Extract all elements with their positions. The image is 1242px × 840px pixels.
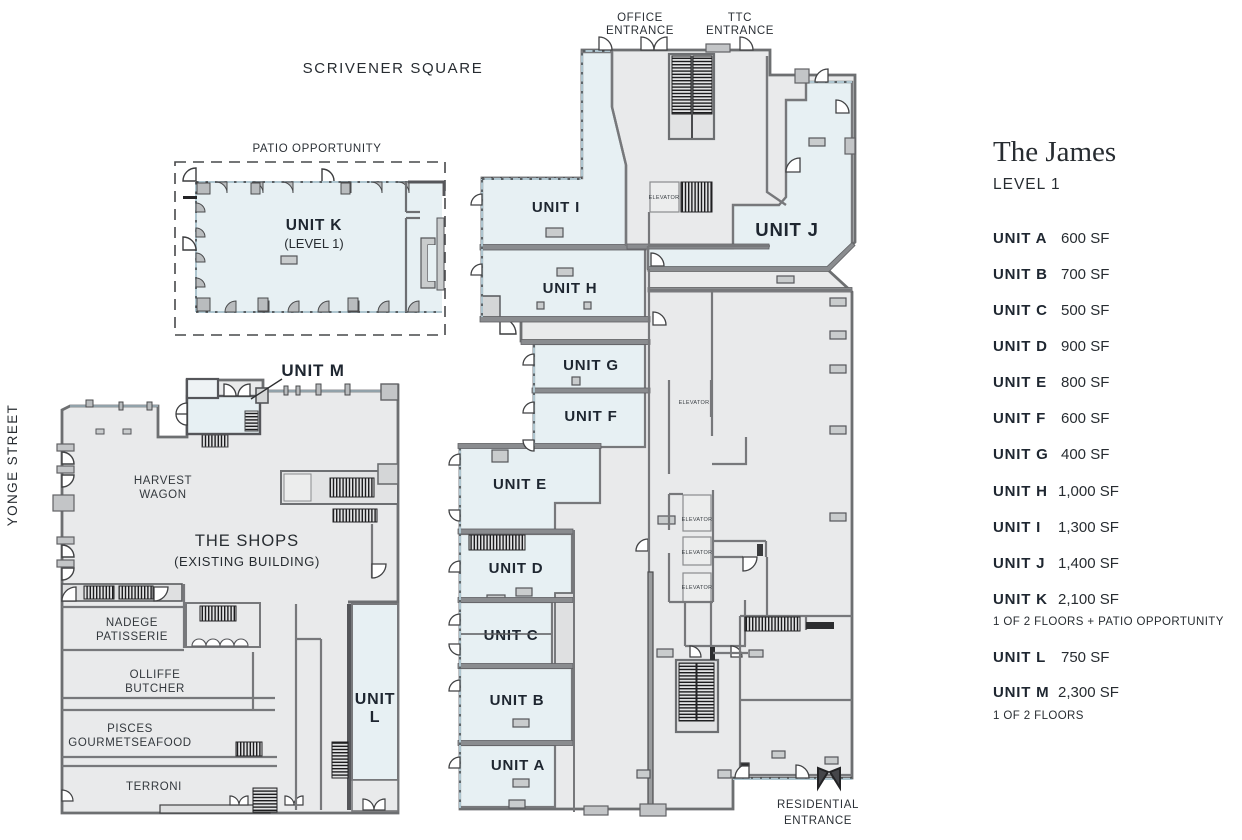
svg-text:UNIT J: UNIT J (755, 219, 818, 240)
svg-text:LEVEL 1: LEVEL 1 (993, 176, 1061, 193)
svg-text:500 SF: 500 SF (1061, 302, 1109, 319)
svg-text:UNIT I: UNIT I (993, 519, 1041, 536)
svg-text:(LEVEL 1): (LEVEL 1) (284, 236, 344, 251)
svg-text:1,300 SF: 1,300 SF (1058, 519, 1119, 536)
svg-text:ENTRANCE: ENTRANCE (706, 25, 774, 37)
svg-text:TERRONI: TERRONI (126, 781, 182, 793)
svg-text:PISCES: PISCES (107, 723, 153, 735)
svg-text:UNIT I: UNIT I (532, 199, 580, 216)
svg-text:(EXISTING BUILDING): (EXISTING BUILDING) (174, 554, 320, 569)
svg-text:TTC: TTC (728, 12, 752, 24)
svg-text:OLLIFFE: OLLIFFE (130, 669, 181, 681)
svg-text:WAGON: WAGON (139, 489, 186, 501)
svg-text:UNIT A: UNIT A (993, 230, 1047, 247)
svg-text:ELEVATOR: ELEVATOR (682, 585, 713, 591)
svg-text:SCRIVENER SQUARE: SCRIVENER SQUARE (303, 60, 484, 77)
svg-text:800 SF: 800 SF (1061, 374, 1109, 391)
svg-text:1,400 SF: 1,400 SF (1058, 555, 1119, 572)
svg-text:PATISSERIE: PATISSERIE (96, 631, 168, 643)
svg-text:UNIT B: UNIT B (993, 266, 1048, 283)
svg-text:UNIT F: UNIT F (993, 410, 1046, 427)
svg-text:UNIT D: UNIT D (993, 338, 1048, 355)
svg-text:THE SHOPS: THE SHOPS (195, 532, 299, 550)
svg-text:400 SF: 400 SF (1061, 446, 1109, 463)
svg-text:RESIDENTIAL: RESIDENTIAL (777, 799, 859, 811)
svg-text:2,300 SF: 2,300 SF (1058, 684, 1119, 701)
svg-text:900 SF: 900 SF (1061, 338, 1109, 355)
svg-text:ELEVATOR: ELEVATOR (682, 550, 713, 556)
svg-text:GOURMETSEAFOOD: GOURMETSEAFOOD (68, 737, 191, 749)
svg-text:700 SF: 700 SF (1061, 266, 1109, 283)
svg-text:2,100 SF: 2,100 SF (1058, 591, 1119, 608)
svg-text:1 OF 2 FLOORS: 1 OF 2 FLOORS (993, 710, 1084, 722)
svg-text:UNIT E: UNIT E (993, 374, 1047, 391)
svg-text:1 OF 2 FLOORS + PATIO OPPORTUN: 1 OF 2 FLOORS + PATIO OPPORTUNITY (993, 616, 1224, 628)
svg-text:UNIT C: UNIT C (993, 302, 1048, 319)
svg-text:L: L (370, 709, 381, 726)
svg-text:750 SF: 750 SF (1061, 649, 1109, 666)
svg-text:UNIT H: UNIT H (543, 280, 598, 297)
svg-text:BUTCHER: BUTCHER (125, 683, 185, 695)
svg-text:UNIT K: UNIT K (993, 591, 1048, 608)
svg-text:OFFICE: OFFICE (617, 12, 663, 24)
svg-text:ELEVATOR: ELEVATOR (649, 195, 680, 201)
svg-text:UNIT: UNIT (355, 691, 396, 708)
svg-text:UNIT D: UNIT D (489, 560, 544, 577)
svg-text:UNIT F: UNIT F (564, 408, 617, 425)
svg-text:NADEGE: NADEGE (106, 617, 158, 629)
svg-text:UNIT H: UNIT H (993, 483, 1048, 500)
svg-text:600 SF: 600 SF (1061, 230, 1109, 247)
svg-text:UNIT E: UNIT E (493, 476, 547, 493)
svg-text:ENTRANCE: ENTRANCE (606, 25, 674, 37)
svg-text:YONGE STREET: YONGE STREET (5, 404, 20, 527)
svg-text:The James: The James (993, 136, 1116, 168)
svg-text:UNIT G: UNIT G (993, 446, 1049, 463)
svg-text:UNIT C: UNIT C (484, 627, 539, 644)
svg-text:600 SF: 600 SF (1061, 410, 1109, 427)
svg-text:ENTRANCE: ENTRANCE (784, 815, 852, 827)
svg-text:UNIT A: UNIT A (491, 757, 545, 774)
svg-text:UNIT M: UNIT M (281, 361, 344, 380)
svg-text:1,000 SF: 1,000 SF (1058, 483, 1119, 500)
svg-text:UNIT L: UNIT L (993, 649, 1046, 666)
svg-text:UNIT M: UNIT M (993, 684, 1049, 701)
svg-text:UNIT J: UNIT J (993, 555, 1045, 572)
svg-text:PATIO OPPORTUNITY: PATIO OPPORTUNITY (252, 143, 381, 155)
svg-text:UNIT K: UNIT K (286, 217, 342, 234)
svg-text:ELEVATOR: ELEVATOR (679, 400, 710, 406)
svg-text:UNIT B: UNIT B (490, 692, 545, 709)
svg-text:HARVEST: HARVEST (134, 475, 192, 487)
svg-text:ELEVATOR: ELEVATOR (682, 517, 713, 523)
svg-text:UNIT G: UNIT G (563, 357, 619, 374)
